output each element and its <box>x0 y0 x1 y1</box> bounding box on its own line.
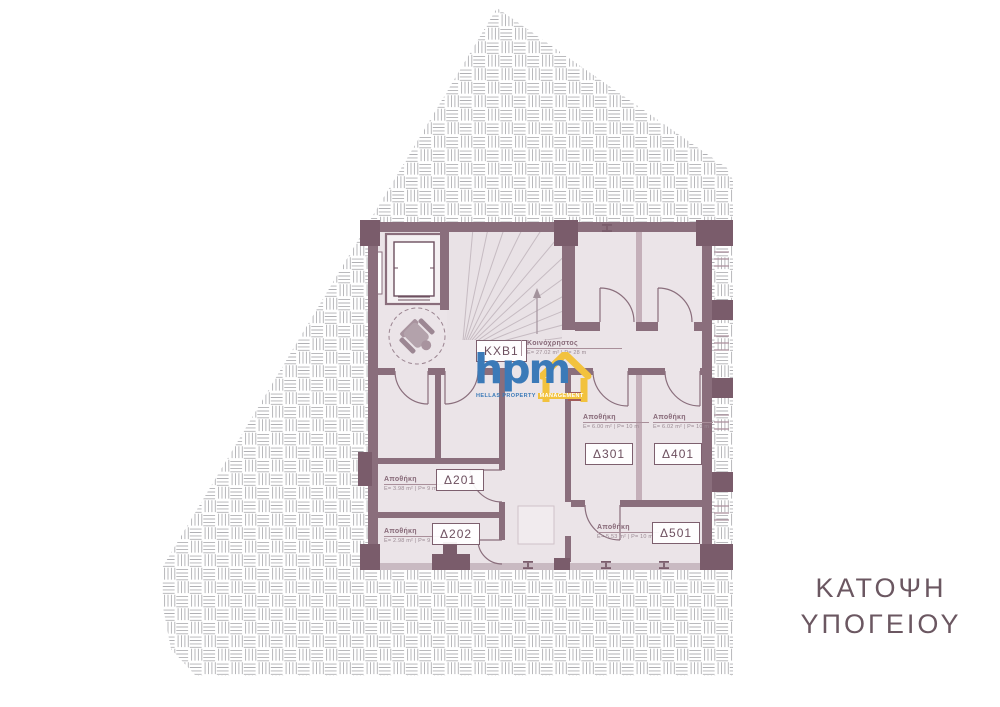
plan-title-line1: ΚΑΤΟΨΗ <box>786 570 976 606</box>
floor-plan-page: KXB1 Κοινόχρηστος Ε= 27.02 m² | P= 28 m … <box>0 0 1000 707</box>
floor-shaft-square <box>518 506 554 544</box>
room-tag-d201: Δ201 <box>436 469 484 491</box>
room-tag-d301: Δ301 <box>585 443 633 465</box>
room-info-d401: Αποθήκη Ε= 6.02 m² | P= 10 m <box>653 414 713 430</box>
logo-tagline: HELLAS PROPERTY MANAGEMENT <box>476 393 586 399</box>
room-tag-d501: Δ501 <box>652 522 700 544</box>
room-tag-d202: Δ202 <box>432 523 480 545</box>
plan-title-line2: ΥΠΟΓΕΙΟΥ <box>786 606 976 642</box>
room-tag-d401: Δ401 <box>654 443 702 465</box>
room-info-d501: Αποθήκη Ε= 5.53 m² | P= 10 m <box>597 524 659 540</box>
room-info-d301: Αποθήκη Ε= 6.00 m² | P= 10 m <box>583 414 649 430</box>
plan-title: ΚΑΤΟΨΗ ΥΠΟΓΕΙΟΥ <box>786 570 976 642</box>
logo-text: hpm <box>474 345 569 393</box>
hpm-logo: hpm HELLAS PROPERTY MANAGEMENT <box>468 352 593 408</box>
